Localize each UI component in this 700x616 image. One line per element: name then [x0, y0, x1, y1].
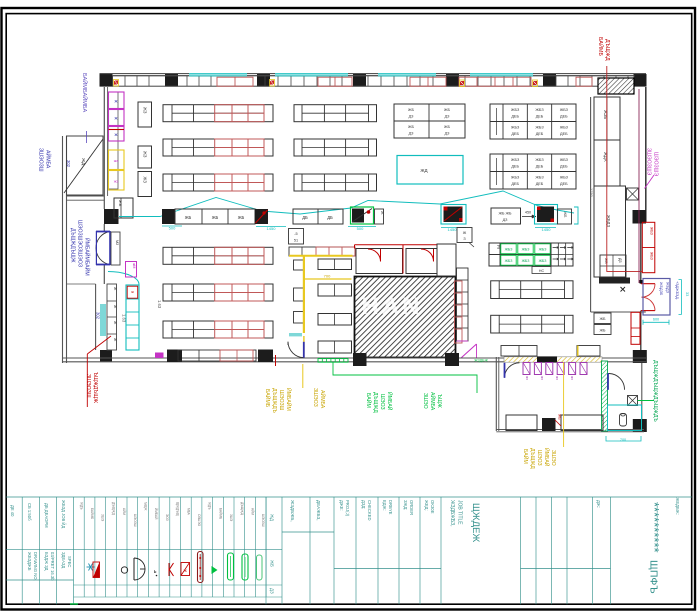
svg-text:АЙМБА: АЙМБА — [319, 390, 327, 409]
svg-text:HAN: HAN — [362, 293, 423, 320]
svg-text:1.63: 1.63 — [122, 314, 127, 323]
svg-text:ДБ: ДБ — [327, 215, 333, 220]
svg-text:ЖБЗ: ЖБЗ — [522, 248, 530, 252]
svg-text:ЖБЗ: ЖБЗ — [511, 176, 520, 180]
svg-text:ЖБ ЖБ: ЖБ ЖБ — [498, 212, 512, 216]
svg-text:ЩПФЪ: ЩПФЪ — [648, 560, 660, 594]
svg-text:ЖБЗ: ЖБЗ — [511, 126, 520, 130]
svg-text:жз: жз — [540, 376, 544, 380]
svg-text:ШЭОЗШЭ: ШЭОЗШЭ — [653, 152, 659, 176]
svg-text:ЖБЗ: ЖБЗ — [539, 248, 547, 252]
svg-text:SPEC: SPEC — [67, 556, 72, 567]
svg-text:**********: ********** — [647, 502, 662, 553]
svg-text:ШЭОЗШ: ШЭОЗШ — [261, 514, 265, 527]
svg-text:ЖБЗ: ЖБЗ — [505, 248, 513, 252]
svg-text:ЗШЭОЗШ: ЗШЭОЗШ — [85, 374, 91, 398]
svg-text:ЖЕД:: ЖЕД: — [424, 500, 429, 511]
svg-text:ЗШЭО: ЗШЭО — [550, 450, 556, 466]
svg-text:ЗШЭОЗШЭ: ЗШЭОЗШЭ — [646, 148, 652, 176]
svg-text:ЖБ: ЖБ — [563, 212, 567, 219]
svg-text:БАЙМБ: БАЙМБ — [218, 508, 222, 519]
svg-text:ШЭОЗШ: ШЭОЗШ — [133, 514, 137, 527]
svg-text:ЖБЗДЖБ: ЖБЗДЖБ — [27, 552, 32, 571]
svg-text:ДЪЩЖД: ДЪЩЖД — [111, 502, 115, 516]
svg-text:БАЙМ: БАЙМ — [365, 393, 373, 408]
svg-text:51: 51 — [294, 239, 298, 243]
svg-text:ЖБЗ: ЖБЗ — [511, 108, 520, 112]
svg-text:ДЕБ: ДЕБ — [511, 165, 519, 169]
svg-text:PROJ(J): PROJ(J) — [345, 500, 350, 517]
svg-text:ДЪЩЖД: ДЪЩЖД — [240, 502, 244, 516]
svg-text:жз: жз — [525, 376, 529, 380]
svg-text:ЙМБАЙ: ЙМБАЙ — [386, 392, 394, 411]
svg-text:ЖБ: ЖБ — [444, 108, 451, 112]
svg-text:ДЕБ: ДЕБ — [511, 182, 519, 186]
svg-text:ЖЗДБЖБЗ,: ЖЗДБЖБЗ, — [449, 500, 455, 527]
svg-text:МБА: МБА — [186, 508, 190, 516]
svg-text:ЖБ: ЖБ — [185, 215, 192, 220]
svg-text:ДЕ 40: ДЕ 40 — [10, 505, 15, 517]
svg-text:ДЗ: ДЗ — [409, 115, 415, 119]
svg-text:ДЕБ: ДЕБ — [536, 165, 544, 169]
svg-text:ЪЩЖ: ЪЩЖ — [144, 502, 148, 511]
svg-text:ЙМБАЙМ: ЙМБАЙМ — [285, 388, 293, 411]
svg-text:ЖД: ЖД — [81, 158, 86, 165]
svg-text:ЗЖД:: ЗЖД: — [403, 500, 408, 510]
svg-text:ЪЩЖ: ЪЩЖ — [436, 394, 442, 408]
svg-text:ЩЖДЪЩ: ЩЖДЪЩ — [176, 502, 180, 516]
svg-text:ЖДЪ: ЖДЪ — [79, 502, 83, 510]
svg-text:М2: М2 — [115, 240, 119, 245]
svg-text:жМ: жМ — [132, 263, 136, 268]
svg-text:DRAWING NO,: DRAWING NO, — [33, 552, 38, 581]
svg-text:ЖБ: ЖБ — [408, 108, 415, 112]
svg-text:ЖБЗ: ЖБЗ — [650, 227, 654, 235]
svg-text:ЖБДЗ: ЖБДЗ — [666, 282, 670, 294]
svg-text:ЭОЗ: ЭОЗ — [165, 514, 169, 521]
svg-text:ДЕАЖБЗ,: ДЕАЖБЗ, — [316, 500, 321, 521]
svg-text:ЖБ: ЖБ — [408, 125, 415, 129]
svg-text:ЪЩЖДЪЩЖ: ЪЩЖДЪЩЖ — [92, 372, 98, 403]
svg-text:БЗДЖ ЗД: БЗДЖ ЗД — [44, 552, 49, 571]
svg-text:1.63: 1.63 — [157, 300, 162, 309]
svg-text:ДЕБ: ДЕБ — [536, 132, 544, 136]
svg-text:ЖБЗ: ЖБЗ — [560, 176, 569, 180]
svg-text:ЖБДЗБ: ЖБДЗБ — [659, 282, 663, 296]
svg-text:302: 302 — [96, 312, 101, 320]
svg-text:ЖБЗ: ЖБЗ — [535, 126, 544, 130]
svg-text:ЗШЭ: ЗШЭ — [229, 514, 233, 522]
svg-text:ЖД: ЖД — [420, 168, 427, 173]
svg-text:ЖБЗ: ЖБЗ — [522, 259, 530, 263]
svg-text:АЙМ: АЙМ — [122, 508, 126, 515]
svg-text:JOB TITLE: JOB TITLE — [457, 500, 463, 525]
svg-text:ДБ ДЕАОРМ: ДБ ДЕАОРМ — [44, 503, 49, 528]
svg-text:ЖБЗ: ЖБЗ — [535, 158, 544, 162]
svg-text:ЖБ: ЖБ — [604, 258, 608, 264]
svg-text:CHECKED: CHECKED — [367, 500, 372, 520]
svg-text:ЗШЭО: ЗШЭО — [422, 393, 428, 409]
svg-text:ж: ж — [114, 116, 117, 121]
svg-text:ЖБЗ: ЖБЗ — [650, 252, 654, 260]
svg-text:ЗШЭОЗШ: ЗШЭОЗШ — [38, 148, 44, 172]
svg-text:ДЪЩЖДЪЩЖ: ДЪЩЖДЪЩЖ — [70, 228, 76, 263]
svg-text:F9: F9 — [496, 245, 500, 249]
svg-text:ДЪЩЖД: ДЪЩЖД — [604, 39, 610, 61]
svg-text:700: 700 — [620, 438, 626, 442]
svg-text:ДЗ: ДЗ — [618, 258, 622, 263]
svg-text:ДЕБ: ДЕБ — [511, 115, 519, 119]
svg-text:ЗДЕАЗД: ЗДЕАЗД — [61, 552, 66, 568]
svg-text:ЖЗДБЖ: ЖЗДБЖ — [474, 359, 488, 363]
svg-text:ЖБ: ЖБ — [238, 215, 245, 220]
svg-text:ЙМБАЙМБАЙМ: ЙМБАЙМБАЙМ — [84, 238, 92, 276]
svg-text:ЖДЪ: ЖДЪ — [208, 502, 212, 510]
svg-text:БАЙМБ: БАЙМБ — [264, 389, 272, 408]
svg-text:ЖБ: ЖБ — [118, 200, 123, 207]
svg-text:ДЕБ: ДЕБ — [511, 132, 519, 136]
svg-text:ж: ж — [114, 98, 117, 103]
svg-text:+ЗДЖБЗД.: +ЗДЖБЗД. — [675, 281, 679, 300]
svg-text:жз: жз — [555, 376, 559, 380]
svg-text:ЖБЗ: ЖБЗ — [539, 259, 547, 263]
svg-text:DRBYE: DRBYE — [388, 500, 393, 515]
svg-text:600: 600 — [653, 318, 659, 322]
svg-text:ЙМБАЙ: ЙМБАЙ — [154, 508, 158, 520]
svg-text:АЙМБА: АЙМБА — [429, 392, 437, 411]
svg-text:ЖЗ: ЖЗ — [143, 177, 148, 184]
svg-text:ДЪЩЖД: ДЪЩЖД — [372, 392, 378, 413]
svg-text:НС: НС — [539, 269, 545, 273]
svg-text:ORDER: ORDER — [409, 500, 414, 515]
svg-text:ДЪЩЖДЪ: ДЪЩЖДЪ — [271, 388, 277, 413]
svg-text:ДЕБ: ДЕБ — [560, 132, 568, 136]
svg-text:ЗЗ: ЗЗ — [685, 292, 689, 296]
svg-text:OK30E: OK30E — [430, 500, 435, 514]
svg-text:Ж: Ж — [463, 231, 467, 235]
svg-text:ЖБЗ: ЖБЗ — [511, 158, 520, 162]
svg-text:ЗШЭОЗ: ЗШЭОЗ — [312, 388, 318, 407]
svg-text:ШЭОЗШ: ШЭОЗШ — [278, 390, 284, 411]
svg-text:ДЕБ: ДЕБ — [560, 115, 568, 119]
svg-text:ЖБ: ЖБ — [558, 414, 562, 420]
svg-text:ЖБ: ЖБ — [212, 215, 219, 220]
svg-text:302: 302 — [66, 160, 71, 168]
svg-text:ДЪЩЖД: ДЪЩЖД — [529, 448, 535, 469]
svg-text:ЖЕДБЖ:: ЖЕДБЖ: — [675, 498, 680, 515]
svg-text:ШЭОЗ: ШЭОЗ — [536, 450, 542, 466]
svg-text:ДЗ: ДЗ — [445, 115, 451, 119]
svg-text:ДЗ: ДЗ — [270, 588, 275, 594]
svg-text:ДЪЩЖДЪЩЖДЪЩЖДЪ: ДЪЩЖДЪЩЖДЪЩЖДЪ — [652, 360, 658, 422]
svg-text:ЖЗ: ЖЗ — [143, 151, 148, 158]
svg-text:ДЗ: ДЗ — [445, 132, 451, 136]
svg-text:ЖБ: ЖБ — [600, 329, 607, 333]
svg-text:ДЕБ: ДЕБ — [560, 165, 568, 169]
svg-text:БАЙМБ: БАЙМБ — [597, 37, 605, 56]
svg-text:АЙМ: АЙМ — [251, 508, 255, 515]
svg-text:ЩЖДЕЖ: ЩЖДЕЖ — [470, 503, 481, 542]
svg-text:03/PRET 16.3b: 03/PRET 16.3b — [50, 552, 55, 581]
svg-text:ДБ: ДБ — [302, 215, 308, 220]
svg-text:700: 700 — [324, 274, 331, 279]
svg-text:СБ 1:50б: СБ 1:50б — [27, 503, 32, 521]
svg-text:-5: -5 — [294, 232, 297, 236]
svg-text:ДЗ: ДЗ — [409, 132, 415, 136]
svg-text:ЖБЗ: ЖБЗ — [560, 108, 569, 112]
svg-text:450: 450 — [525, 211, 531, 215]
svg-text:ЖЗДБЖБ,: ЖЗДБЖБ, — [290, 500, 295, 522]
svg-text:ДЕБ: ДЕБ — [536, 182, 544, 186]
svg-text:БАЙМБ: БАЙМБ — [90, 508, 94, 519]
svg-text:1750: 1750 — [589, 188, 594, 198]
svg-text:ДЕБ: ДЕБ — [536, 115, 544, 119]
svg-text:БАЙМБАЙМБА: БАЙМБАЙМБА — [81, 73, 89, 112]
svg-text:ЖБЗД JOB ЙД: ЖБЗД JOB ЙД — [61, 500, 66, 528]
svg-text:ЕДЖ:: ЕДЖ: — [382, 500, 387, 511]
svg-text:ЖЗ: ЖЗ — [143, 107, 148, 114]
svg-text:ЙМБАЙ: ЙМБАЙ — [543, 448, 551, 467]
svg-text:ШЭОЗШЭОЗШЭОЗ: ШЭОЗШЭОЗШЭОЗ — [77, 220, 83, 267]
svg-text:ЖБЗ: ЖБЗ — [505, 259, 513, 263]
svg-text:ЖБ: ЖБ — [600, 317, 607, 321]
svg-text:ДЗД:: ДЗД: — [361, 500, 366, 509]
svg-text:АЙМБА: АЙМБА — [45, 150, 53, 169]
svg-text:ь: ь — [154, 569, 157, 575]
svg-text:ДЕБ: ДЕБ — [560, 182, 568, 186]
svg-text:жз: жз — [114, 158, 119, 163]
svg-text:жз: жз — [570, 376, 574, 380]
svg-text:ЖБЗ: ЖБЗ — [535, 108, 544, 112]
svg-text:ЖБ: ЖБ — [444, 125, 451, 129]
svg-text:ШЭОЗ: ШЭОЗ — [379, 394, 385, 410]
svg-text:ЗШЭ: ЗШЭ — [101, 514, 105, 522]
svg-text:ДЗ: ДЗ — [503, 218, 509, 222]
svg-text:ж: ж — [114, 132, 117, 137]
svg-text:ж: ж — [131, 290, 134, 294]
svg-text:ЖБЗ: ЖБЗ — [560, 126, 569, 130]
svg-text:ЖБЗ: ЖБЗ — [560, 158, 569, 162]
svg-text:БАЙМ: БАЙМ — [522, 449, 530, 464]
svg-text:ДЖ:: ДЖ: — [596, 500, 601, 508]
svg-text:жз: жз — [114, 178, 119, 183]
svg-text:ОЗШЭО: ОЗШЭО — [197, 514, 201, 527]
svg-text:ЖБЗ: ЖБЗ — [535, 176, 544, 180]
svg-text:ДЖЕ:: ДЖЕ: — [339, 500, 344, 511]
svg-text:ЖБ: ЖБ — [270, 560, 275, 567]
svg-text:Ж: Ж — [380, 211, 384, 215]
svg-text:ЖД: ЖД — [270, 514, 275, 521]
